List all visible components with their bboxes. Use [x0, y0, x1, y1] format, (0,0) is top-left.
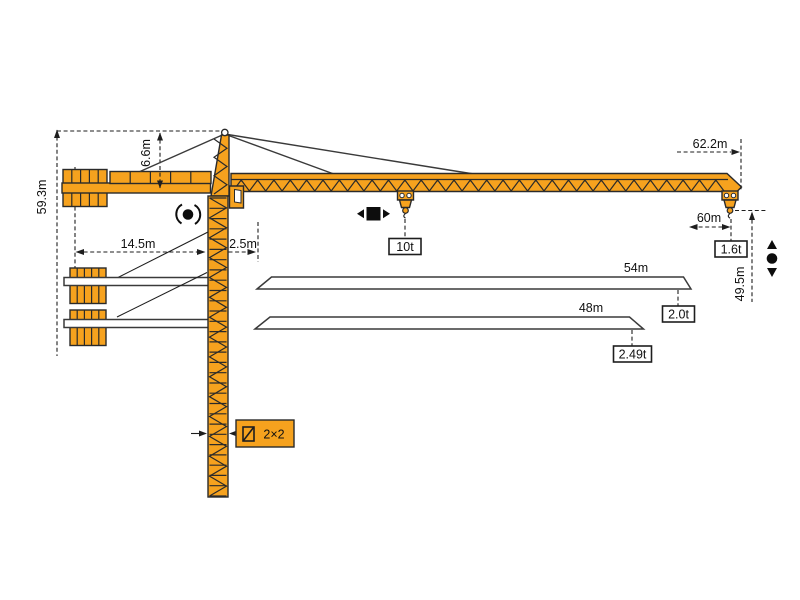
- tip-load-label: 1.6t: [721, 243, 742, 257]
- trolley-tip: [722, 191, 738, 218]
- apex-pin: [222, 129, 228, 135]
- jib-option-54m: 54m 2.0t: [257, 261, 695, 322]
- counter-jib: [62, 170, 211, 207]
- max-load-label: 10t: [396, 240, 414, 254]
- total-height-label: 59.3m: [35, 180, 49, 215]
- hoist-up-down-icon: [767, 240, 778, 277]
- counter-jib-beam: [62, 183, 211, 193]
- hook-mid: [403, 208, 409, 214]
- hook-tip: [727, 208, 733, 214]
- dimension-radius-60m: 60m: [689, 211, 731, 230]
- hook-height-label: 49.5m: [733, 267, 747, 302]
- counter-jib-outline-option-1: [64, 278, 209, 286]
- counter-jib-outline-option-2: [64, 320, 209, 328]
- tower-mast: [208, 196, 228, 497]
- tower-head-height-label: 6.6m: [139, 139, 153, 167]
- cab-window: [235, 190, 242, 204]
- jib-option-54m-tip-load: 2.0t: [668, 308, 689, 322]
- trolley-mid: [398, 191, 414, 218]
- mast-section-callout: 2×2: [191, 420, 294, 447]
- radius-60m-label: 60m: [697, 211, 721, 225]
- dimension-counter-jib-length: 14.5m: [76, 237, 206, 255]
- operator-cab: [230, 186, 244, 208]
- max-radius-label: 62.2m: [693, 137, 728, 151]
- diagram-canvas: 59.3m 14.5m 2.5m 6.6m: [0, 0, 800, 600]
- trolley-travel-icon: [357, 207, 390, 221]
- crane-load-diagram: 59.3m 14.5m 2.5m 6.6m: [0, 0, 800, 600]
- jib-option-48m: 48m 2.49t: [255, 301, 652, 362]
- main-jib: [231, 174, 742, 192]
- jib-option-54m-label: 54m: [624, 261, 648, 275]
- counter-jib-length-label: 14.5m: [121, 237, 156, 251]
- mast-section-label: 2×2: [263, 428, 284, 442]
- slewing-rotation-icon: [176, 205, 200, 225]
- tie-rods: [140, 134, 480, 177]
- dimension-min-radius: 2.5m: [229, 222, 259, 262]
- jib-option-48m-label: 48m: [579, 301, 603, 315]
- min-radius-label: 2.5m: [229, 237, 257, 251]
- jib-option-48m-tip-load: 2.49t: [619, 348, 647, 362]
- max-load-callout: 10t: [389, 219, 421, 255]
